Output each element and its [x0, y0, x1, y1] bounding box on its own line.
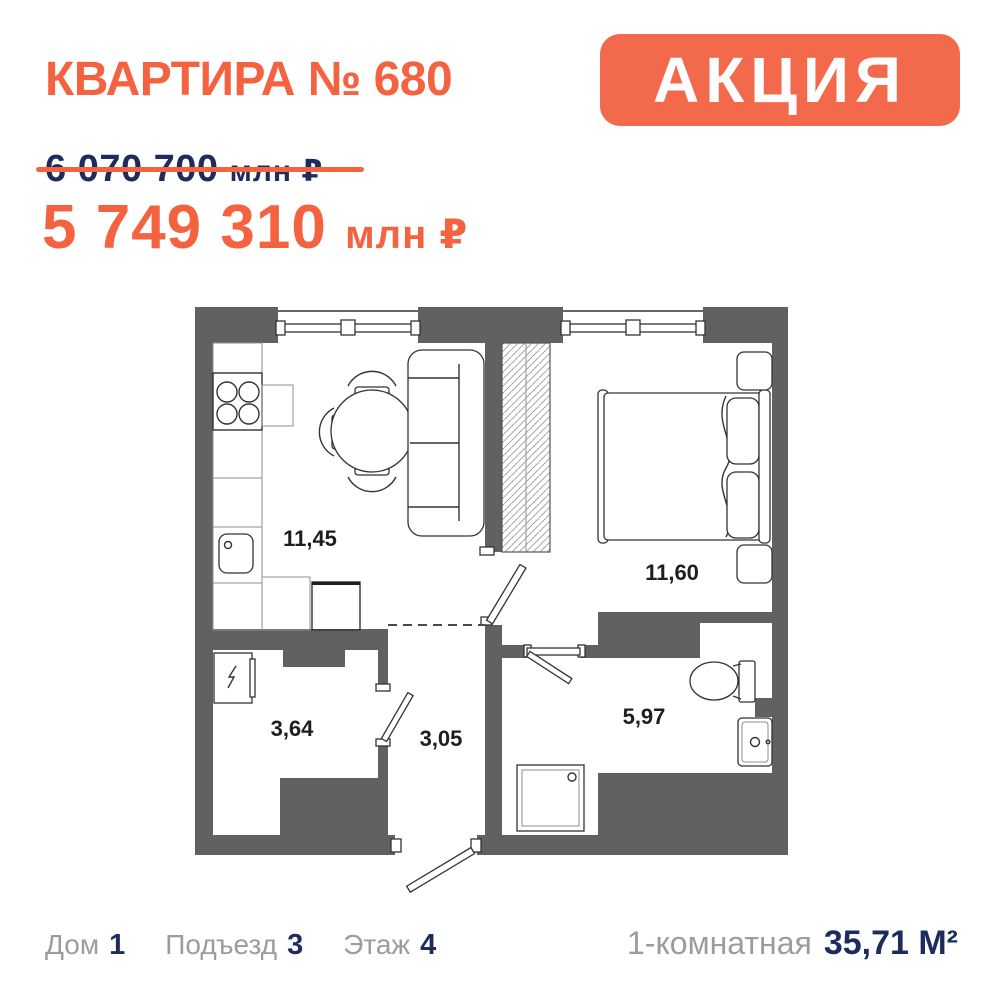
- nightstand-icon: [737, 352, 772, 390]
- apartment-type: 1-комнатная: [627, 925, 812, 962]
- house-info: Дом 1: [45, 929, 125, 962]
- toilet-icon: [690, 661, 755, 702]
- room-area-kitchen: 11,45: [283, 526, 337, 551]
- stove-icon: [213, 373, 293, 430]
- entrance-door-icon: [391, 839, 481, 892]
- apartment-card: КВАРТИРА № 680 АКЦИЯ 6 070 700 млн ₽ 5 7…: [0, 0, 1000, 1000]
- shower-icon: [517, 765, 584, 831]
- floor-label: Этаж: [343, 929, 410, 961]
- wardrobe-icon: [502, 343, 550, 552]
- nightstand-icon: [737, 545, 772, 583]
- room-area-corridor: 3,05: [420, 726, 463, 751]
- floor-info: Этаж 4: [343, 929, 436, 962]
- sofa-icon: [408, 350, 484, 536]
- floor-plan: 11,45 11,60 3,64 3,05 5,97: [0, 0, 1000, 1000]
- bed-icon: [598, 352, 772, 583]
- walls: [195, 307, 788, 855]
- building-info: Дом 1 Подъезд 3 Этаж 4: [45, 929, 436, 962]
- room-area-bathroom: 5,97: [623, 704, 666, 729]
- bathroom-door-icon: [524, 645, 585, 684]
- footer: Дом 1 Подъезд 3 Этаж 4 1-комнатная 35,71…: [45, 924, 958, 963]
- apartment-summary: 1-комнатная 35,71 М²: [627, 924, 958, 963]
- bedroom-window-icon: [561, 311, 705, 335]
- house-label: Дом: [45, 929, 99, 961]
- bedroom-door-icon: [480, 547, 526, 625]
- bath-sink-icon: [738, 718, 772, 766]
- dining-set-icon: [319, 371, 413, 491]
- entrance-label: Подъезд: [165, 929, 277, 961]
- entrance-value: 3: [287, 929, 303, 962]
- room-area-hallway: 3,64: [271, 716, 315, 741]
- floor-value: 4: [420, 929, 436, 962]
- entrance-info: Подъезд 3: [165, 929, 303, 962]
- fridge-icon: [312, 582, 360, 630]
- electrical-panel-icon: [214, 653, 255, 703]
- kitchen-window-icon: [276, 311, 420, 335]
- kitchen-sink-icon: [219, 534, 253, 573]
- hallway-door-icon: [376, 684, 413, 746]
- room-area-bedroom: 11,60: [645, 560, 699, 585]
- total-area: 35,71 М²: [824, 924, 958, 963]
- house-value: 1: [109, 929, 125, 962]
